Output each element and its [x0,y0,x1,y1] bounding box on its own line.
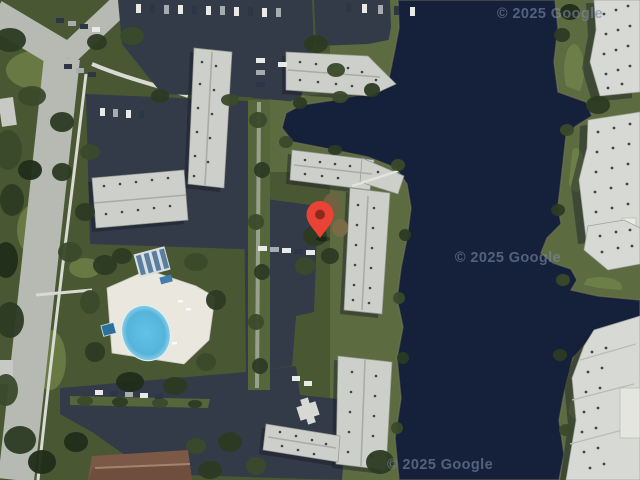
map-attribution: © 2025 Google [497,6,603,22]
map-attribution: © 2025 Google [387,457,493,473]
building-roof [188,48,232,188]
map-attribution: © 2025 Google [455,250,561,266]
map-viewport[interactable]: © 2025 Google © 2025 Google © 2025 Googl… [0,0,640,480]
satellite-map-canvas[interactable]: © 2025 Google © 2025 Google © 2025 Googl… [0,0,640,480]
pin-dot [315,210,325,220]
